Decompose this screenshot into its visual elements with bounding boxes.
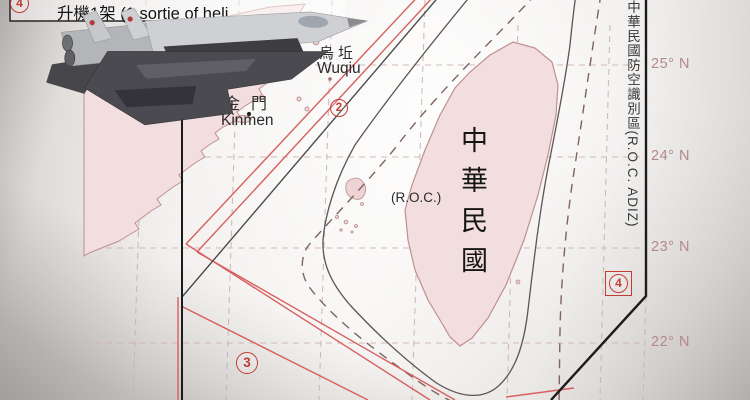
latitude-label-25n: 25° N: [651, 56, 690, 72]
latitude-label-23n: 23° N: [651, 239, 690, 255]
penghu-islands: [335, 178, 365, 233]
adiz-name-label: 中華民國防空識別區(R.O.C. ADIZ): [622, 0, 642, 260]
marker-4-southeast: 4: [609, 274, 628, 293]
green-island: [516, 280, 520, 284]
main-wing: [84, 48, 329, 126]
taiwan-name-label: 中華民國: [452, 126, 491, 286]
taiwan-roc-label: (R.O.C.): [391, 190, 441, 205]
marker-3-southwest: 3: [236, 352, 258, 374]
adiz-map-graphic: 升機1架 (1 sortie of heli 烏坵 Wuqiu 金門 Kinme…: [0, 0, 750, 400]
marker-4-southeast-box: 4: [605, 271, 632, 296]
latitude-label-24n: 24° N: [651, 148, 690, 164]
fighter-jet-image: [0, 0, 387, 147]
latitude-label-22n: 22° N: [651, 334, 690, 350]
